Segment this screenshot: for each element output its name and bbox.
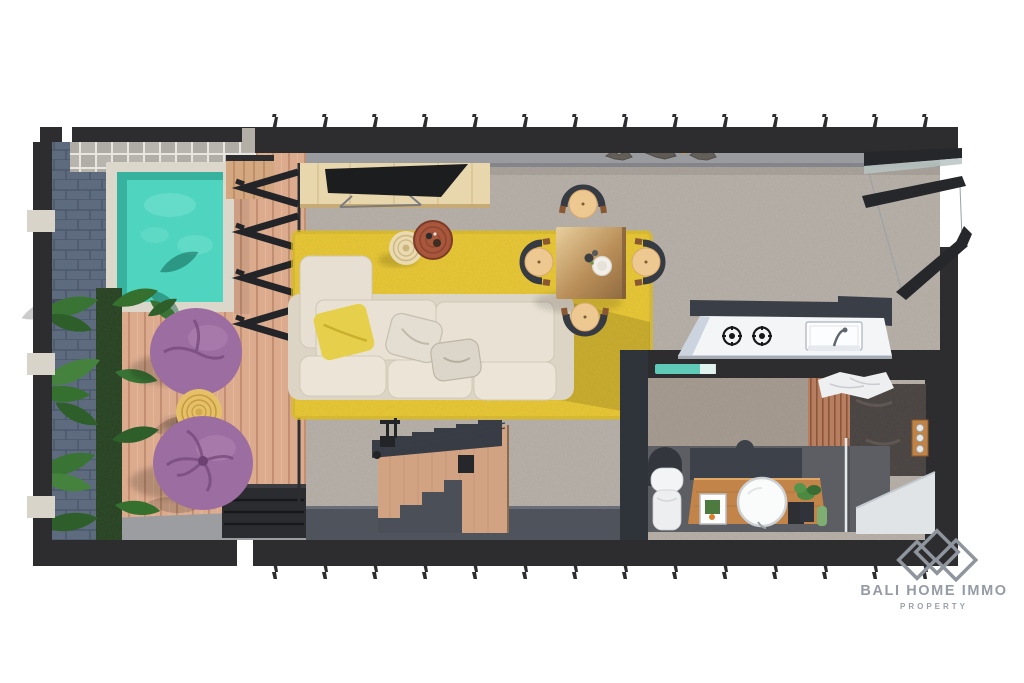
green-towel <box>817 506 827 526</box>
framed-picture <box>700 494 726 524</box>
pool-water <box>117 172 223 302</box>
kitchen-sink <box>806 322 862 351</box>
floor-plan-canvas: BALI HOME IMMO PROPERTY <box>0 0 1024 683</box>
round-mirror <box>738 478 786 528</box>
kitchen-counter <box>678 296 892 359</box>
wall-section-ticks-bottom <box>255 566 955 579</box>
wall-pilaster <box>27 210 55 232</box>
white-pillow <box>430 338 483 382</box>
table-decor <box>426 233 432 239</box>
back-cushion <box>300 356 386 396</box>
window-opening <box>940 153 958 247</box>
wall-section-ticks-top <box>255 114 955 127</box>
top-wall <box>255 127 958 153</box>
planting-bed <box>96 288 122 540</box>
bottom-wall <box>33 540 958 566</box>
bathroom <box>620 350 940 540</box>
counter-back-edge <box>690 300 838 318</box>
toilet <box>651 468 683 530</box>
bathroom-west-wall <box>620 350 648 540</box>
top-wall-left <box>40 127 255 142</box>
table-decor <box>433 239 441 247</box>
shower-controls <box>912 420 928 456</box>
wall-pilaster <box>27 353 55 375</box>
bowl <box>585 254 594 263</box>
back-cushion <box>474 362 556 400</box>
floor-plan-render: BALI HOME IMMO PROPERTY <box>0 0 1024 683</box>
watermark-brand-text: BALI HOME IMMO <box>860 583 1007 599</box>
stair-hardware <box>458 455 474 473</box>
wood-coffee-table <box>414 221 452 259</box>
watermark-tagline-text: PROPERTY <box>900 602 968 611</box>
wall-column <box>242 128 255 152</box>
wall-pilaster <box>27 496 55 518</box>
